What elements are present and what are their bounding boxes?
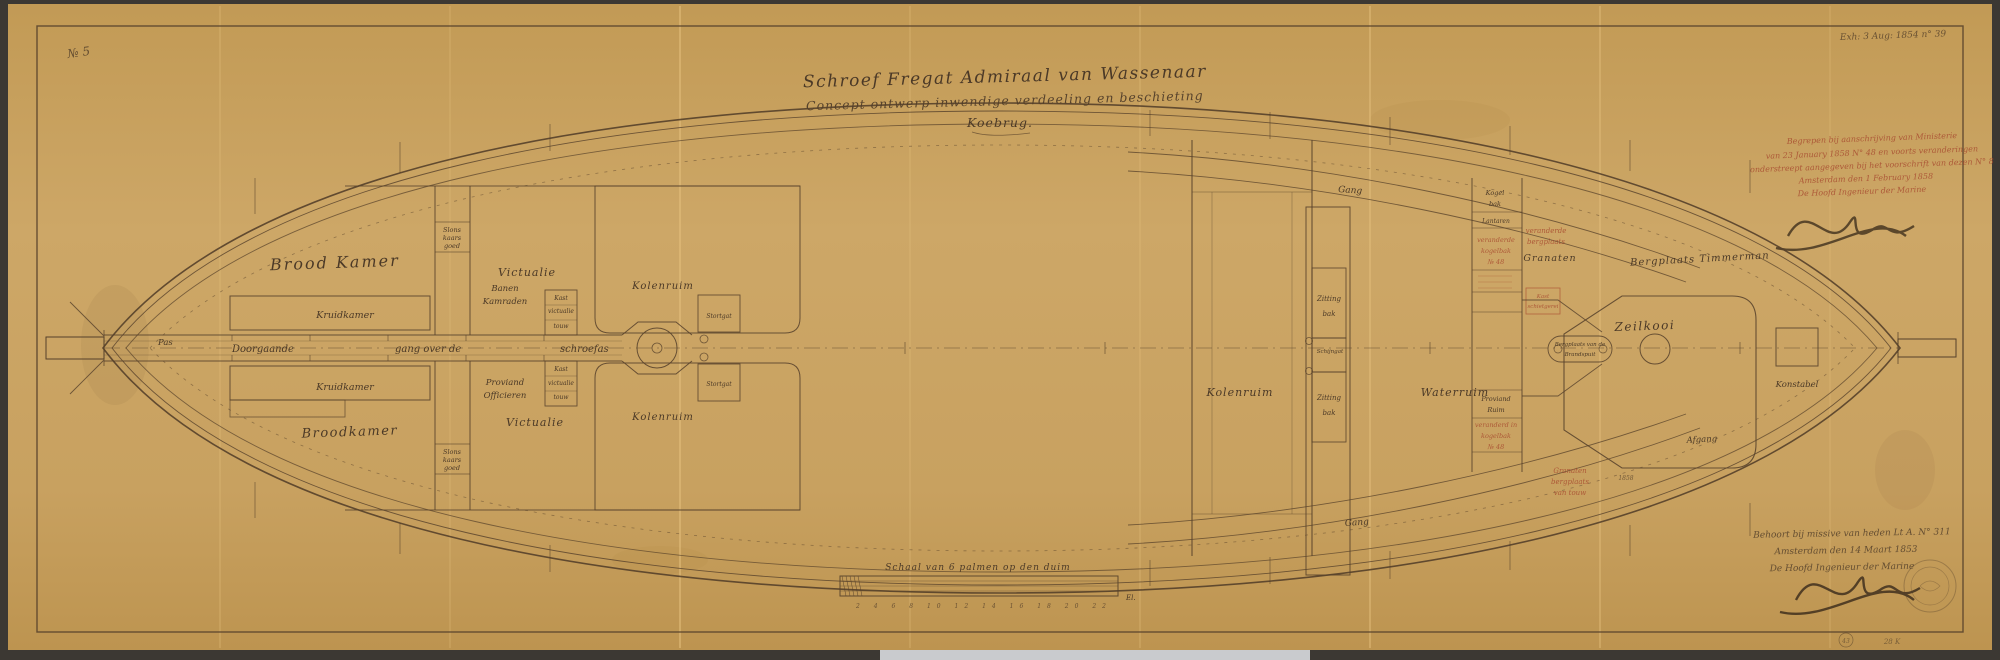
plan-drawing: № 5 Exh: 3 Aug: 1854 n° 39 Schroef Frega… — [0, 0, 2000, 660]
red-bergplaats-3: van touw — [1554, 489, 1586, 497]
corner-stamp-number: 43 — [1841, 638, 1850, 645]
klein-magazijn-bottom-3: goed — [444, 464, 460, 472]
scale-bar-end-label: El. — [1125, 594, 1136, 602]
konstabel-label: Konstabel — [1775, 380, 1819, 390]
red-note-top-1: veranderde — [1477, 236, 1515, 244]
red-note-bottom-1: veranderd in — [1475, 421, 1517, 429]
kast-top-2: victualie — [548, 308, 574, 315]
corridor-label-2: gang over de — [395, 344, 461, 355]
kogelbak-1: Kogel — [1485, 189, 1505, 197]
ship-plan-sheet: { "sheet": { "number": "№ 5", "archive_n… — [0, 0, 2000, 660]
red-bergplaats-1: Granaten — [1553, 467, 1587, 475]
kast-top-1: Kast — [553, 295, 568, 302]
paper-stain — [81, 285, 149, 405]
red-kast-label-1: Kast — [1536, 294, 1550, 300]
klein-magazijn-bottom-1: Slons — [443, 448, 462, 456]
red-note-bottom-2: kogelbak — [1481, 432, 1511, 440]
brandspuit-label-2: Brandspuit — [1564, 352, 1597, 358]
lantaren-label: Lantaren — [1481, 218, 1510, 225]
red-bergplaats-2: bergplaats — [1551, 478, 1589, 486]
proviand-ruim-2: Ruim — [1486, 406, 1504, 414]
year-mark: 1858 — [1618, 475, 1633, 482]
klein-magazijn-bottom-2: kaars — [443, 456, 462, 464]
banen-label-2: Kamraden — [482, 297, 528, 307]
paper-stain — [1370, 100, 1510, 140]
corridor-label-1: Doorgaande — [231, 344, 294, 355]
red-granaten-note-1: veranderde — [1526, 227, 1567, 235]
scale-bar-label: Schaal van 6 palmen op den duim — [885, 563, 1070, 573]
pas-label: Pas — [157, 338, 173, 348]
schijngat-label: Schijngat — [1317, 349, 1344, 355]
proviand-ruim-1: Proviand — [1480, 395, 1510, 403]
banen-label-1: Banen — [490, 284, 518, 294]
kolenruim-label: Kolenruim — [1206, 386, 1274, 399]
victualie-bottom-label: Victualie — [506, 416, 564, 429]
red-kast-label-2: schietgerei — [1527, 304, 1558, 310]
paper-stain — [1875, 430, 1935, 510]
kruidkamer-top-label: Kruidkamer — [315, 310, 375, 321]
kolenruim-aft-top-label: Kolenruim — [631, 281, 694, 292]
kogelbak-2: bak — [1489, 200, 1501, 208]
red-note-top-3: № 48 — [1487, 258, 1505, 266]
granaten-label: Granaten — [1523, 253, 1576, 264]
kruidkamer-bottom-label: Kruidkamer — [315, 382, 375, 393]
klein-magazijn-top-1: Slons — [443, 226, 462, 234]
kast-bottom-2: victualie — [548, 380, 574, 387]
stortgat-bottom-label: Stortgat — [706, 381, 732, 388]
zittingbak-top-2: bak — [1323, 310, 1336, 318]
zittingbak-bottom-2: bak — [1323, 409, 1336, 417]
proviand-officieren-1: Proviand — [485, 378, 525, 388]
zeilkooi-label: Zeilkooi — [1613, 318, 1675, 334]
kolenruim-aft-bottom-label: Kolenruim — [631, 412, 694, 423]
brandspuit-label-1: Bergplaats van de — [1554, 342, 1606, 348]
victualie-top-label: Victualie — [498, 266, 556, 279]
klein-magazijn-top-3: goed — [444, 242, 460, 250]
afgang-label: Afgang — [1685, 434, 1718, 446]
klein-magazijn-top-2: kaars — [443, 234, 462, 242]
red-granaten-note-2: bergplaats — [1527, 238, 1565, 246]
proviand-officieren-2: Officieren — [484, 391, 527, 401]
kast-bottom-3: touw — [553, 394, 569, 401]
kast-bottom-1: Kast — [553, 366, 568, 373]
red-note-bottom-3: № 48 — [1487, 443, 1505, 451]
zittingbak-top-1: Zitting — [1316, 295, 1341, 303]
title-line3: Koebrug. — [966, 115, 1033, 130]
gang-top-label: Gang — [1338, 185, 1363, 197]
kast-top-3: touw — [553, 323, 569, 330]
corner-mark: 28 K — [1883, 638, 1901, 646]
corridor-label-3: schroefas — [560, 344, 609, 355]
gang-bottom-label: Gang — [1345, 517, 1370, 529]
zittingbak-bottom-1: Zitting — [1316, 394, 1341, 402]
red-note-top-2: kogelbak — [1481, 247, 1511, 255]
waterruim-label: Waterruim — [1421, 386, 1489, 399]
stortgat-top-label: Stortgat — [706, 313, 732, 320]
